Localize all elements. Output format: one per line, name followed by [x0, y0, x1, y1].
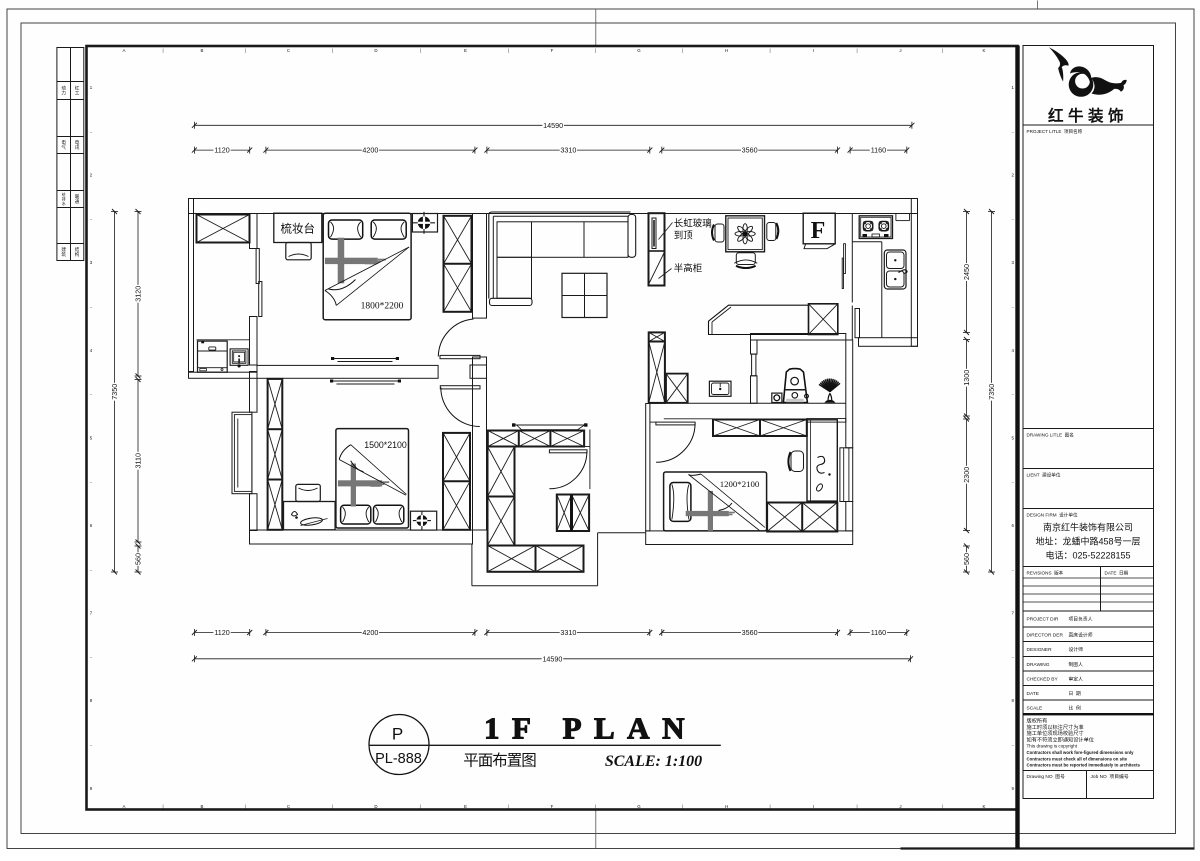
svg-text:审定人: 审定人: [1069, 676, 1084, 683]
svg-text:F: F: [551, 48, 554, 53]
svg-text:Contractors must check all of: Contractors must check all of dimensions…: [1027, 756, 1128, 761]
svg-text:|: |: [595, 804, 596, 809]
svg-text:|: |: [332, 48, 333, 53]
svg-text:施工时须以标注尺寸为准: 施工时须以标注尺寸为准: [1027, 723, 1084, 731]
svg-text:DESIGN FIRM 设计单位: DESIGN FIRM 设计单位: [1027, 512, 1078, 519]
svg-text:|: |: [508, 804, 509, 809]
svg-text:G: G: [637, 804, 641, 809]
svg-text:C: C: [287, 48, 290, 53]
svg-text:4200: 4200: [362, 628, 378, 637]
svg-text:南京红牛装饰有限公司: 南京红牛装饰有限公司: [1043, 522, 1133, 533]
svg-text:1300: 1300: [962, 370, 971, 386]
svg-text:版权所有: 版权所有: [1027, 717, 1048, 725]
svg-text:This drawing is copyright: This drawing is copyright: [1027, 744, 1078, 749]
svg-text:长虹玻璃: 长虹玻璃: [674, 218, 712, 230]
svg-text:|: |: [942, 804, 943, 809]
svg-text:|: |: [856, 48, 857, 53]
svg-text:讯: 讯: [75, 144, 80, 151]
svg-text:7350: 7350: [987, 384, 996, 400]
svg-text:构: 构: [75, 251, 80, 258]
svg-text:Contractors shall work fore-fi: Contractors shall work fore-figured dime…: [1027, 750, 1135, 755]
svg-text:|: |: [769, 48, 770, 53]
svg-text:3560: 3560: [742, 146, 758, 155]
svg-text:P: P: [392, 725, 403, 744]
svg-text:|: |: [595, 48, 596, 53]
svg-text:如有不符须立即通知设计单位: 如有不符须立即通知设计单位: [1027, 735, 1094, 743]
svg-text:3120: 3120: [133, 286, 142, 302]
svg-text:E: E: [464, 48, 467, 53]
svg-text:C: C: [287, 804, 290, 809]
svg-text:半高柜: 半高柜: [674, 263, 703, 275]
svg-text:I: I: [813, 804, 814, 809]
svg-text:LIENT 建设单位: LIENT 建设单位: [1027, 472, 1061, 479]
svg-text:|: |: [420, 48, 421, 53]
svg-text:K: K: [983, 804, 986, 809]
svg-text:比 例: 比 例: [1069, 705, 1081, 712]
svg-text:Contractors must be reported i: Contractors must be reported immediately…: [1027, 763, 1141, 768]
svg-text:A: A: [123, 48, 126, 53]
svg-text:SCALE: 1:100: SCALE: 1:100: [605, 753, 702, 770]
svg-text:3310: 3310: [560, 146, 576, 155]
svg-text:1F PLAN: 1F PLAN: [484, 711, 697, 746]
svg-text:|: |: [162, 804, 163, 809]
svg-text:设计师: 设计师: [1069, 646, 1084, 653]
svg-text:K: K: [983, 48, 986, 53]
svg-text:560: 560: [133, 553, 142, 565]
svg-text:|: |: [332, 804, 333, 809]
svg-text:|: |: [245, 48, 246, 53]
svg-text:1160: 1160: [871, 146, 886, 155]
svg-text:DATE: DATE: [1027, 691, 1039, 697]
svg-text:到顶: 到顶: [674, 230, 694, 242]
svg-text:|: |: [508, 48, 509, 53]
svg-text:3110: 3110: [133, 453, 142, 468]
svg-text:电: 电: [61, 139, 66, 145]
svg-text:直席设计师: 直席设计师: [1069, 632, 1093, 639]
svg-text:2300: 2300: [962, 467, 971, 483]
svg-text:施工单位须现场校验尺寸: 施工单位须现场校验尺寸: [1027, 729, 1084, 737]
svg-text:1120: 1120: [214, 146, 229, 155]
svg-text:项目负责人: 项目负责人: [1069, 616, 1093, 623]
svg-text:F: F: [551, 804, 554, 809]
svg-text:J: J: [899, 804, 901, 809]
svg-text:DIRECTOR DER: DIRECTOR DER: [1027, 633, 1064, 639]
svg-text:|: |: [682, 804, 683, 809]
svg-text:电: 电: [75, 139, 80, 145]
svg-text:1120: 1120: [214, 628, 229, 637]
svg-text:D: D: [374, 804, 377, 809]
svg-text:红牛装饰: 红牛装饰: [1048, 106, 1128, 125]
svg-text:I: I: [813, 48, 814, 53]
svg-text:力: 力: [61, 90, 66, 97]
svg-text:PROJECT LITLE 项目名称: PROJECT LITLE 项目名称: [1027, 128, 1083, 135]
svg-text:B: B: [201, 804, 204, 809]
svg-text:Job NO 项目编号: Job NO 项目编号: [1091, 773, 1129, 780]
svg-text:14590: 14590: [543, 121, 563, 130]
svg-text:地址：龙蟠中路458号一层: 地址：龙蟠中路458号一层: [1035, 536, 1140, 547]
svg-text:2450: 2450: [962, 264, 971, 280]
svg-text:H: H: [725, 804, 728, 809]
svg-text:3560: 3560: [742, 628, 758, 637]
svg-text:CHECKED BY: CHECKED BY: [1027, 677, 1059, 683]
svg-text:|: |: [245, 804, 246, 809]
svg-text:PROJECT DIR: PROJECT DIR: [1027, 617, 1059, 623]
svg-text:|: |: [420, 804, 421, 809]
svg-text:G: G: [637, 48, 641, 53]
svg-text:1160: 1160: [871, 628, 886, 637]
svg-text:DRAWING LITLE 图名: DRAWING LITLE 图名: [1027, 432, 1074, 439]
svg-text:|: |: [769, 804, 770, 809]
svg-text:红: 红: [75, 85, 80, 91]
svg-text:水: 水: [62, 201, 66, 206]
svg-text:B: B: [201, 48, 204, 53]
svg-text:H: H: [725, 48, 728, 53]
svg-text:DESIGNER: DESIGNER: [1027, 647, 1053, 653]
svg-text:PL-888: PL-888: [375, 751, 422, 767]
svg-text:|: |: [682, 48, 683, 53]
svg-text:|: |: [942, 48, 943, 53]
svg-text:日 期: 日 期: [1069, 691, 1081, 697]
svg-text:SCALE: SCALE: [1027, 706, 1043, 712]
svg-text:Drawing NO 图号: Drawing NO 图号: [1027, 774, 1066, 780]
svg-text:D: D: [374, 48, 377, 53]
svg-text:|: |: [856, 804, 857, 809]
svg-text:DRAWING: DRAWING: [1027, 662, 1050, 668]
svg-text:4200: 4200: [362, 146, 378, 155]
svg-text:电话：025-52228155: 电话：025-52228155: [1045, 550, 1130, 561]
svg-text:制图人: 制图人: [1069, 661, 1084, 668]
svg-text:通: 通: [75, 198, 80, 205]
svg-text:|: |: [162, 48, 163, 53]
svg-text:1500*2100: 1500*2100: [364, 440, 407, 450]
svg-text:REVISIONS 版本: REVISIONS 版本: [1027, 570, 1064, 577]
svg-text:J: J: [899, 48, 901, 53]
svg-text:1200*2100: 1200*2100: [720, 479, 760, 489]
svg-text:3310: 3310: [560, 628, 576, 637]
svg-text:梳妆台: 梳妆台: [281, 222, 316, 236]
svg-text:14590: 14590: [542, 654, 562, 663]
svg-text:560: 560: [962, 553, 971, 565]
svg-text:1800*2200: 1800*2200: [361, 301, 404, 311]
svg-text:A: A: [123, 804, 126, 809]
svg-text:气: 气: [61, 144, 66, 150]
svg-text:平面布置图: 平面布置图: [463, 752, 536, 770]
svg-text:F: F: [811, 218, 826, 244]
svg-text:筑: 筑: [61, 251, 66, 258]
svg-text:E: E: [464, 804, 467, 809]
svg-text:工: 工: [75, 91, 80, 96]
svg-text:7350: 7350: [110, 384, 119, 400]
